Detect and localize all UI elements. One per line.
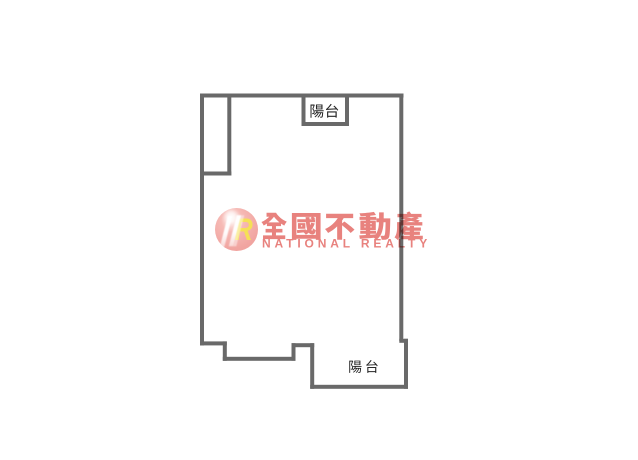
- svg-text:NATIONAL REALTY: NATIONAL REALTY: [262, 237, 431, 251]
